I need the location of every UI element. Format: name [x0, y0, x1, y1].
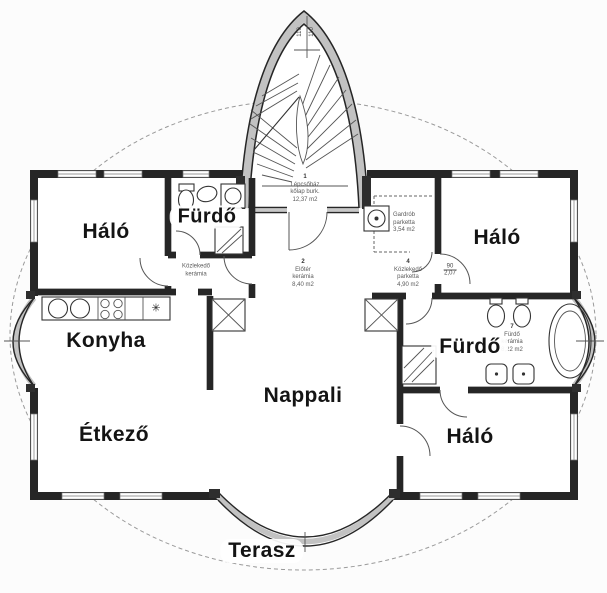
- room-label-terrace: Terasz: [220, 539, 303, 563]
- room-label-bathroom-right: Fürdő: [431, 335, 508, 359]
- boiler-icon: [364, 206, 389, 231]
- door-dimension: 90 2,07: [444, 264, 457, 277]
- room-label-dining-room: Étkező: [71, 423, 157, 447]
- room-label-bathroom-top-left: Fürdő: [170, 206, 245, 229]
- arch-dimension-right: 110: [309, 27, 315, 37]
- room-label-kitchen: Konyha: [58, 329, 153, 353]
- annotation-wardrobe: Gardrób parketta 3,54 m2: [393, 212, 415, 235]
- annotation-corridor-left: Közlekedő kerámia: [182, 264, 210, 279]
- shower-icon: [215, 227, 243, 254]
- annotation-corridor-right: 4 Közlekedő parketta 4,90 m2: [394, 259, 422, 289]
- room-label-bedroom-bottom-right: Háló: [438, 425, 501, 449]
- floor-plan: Háló Fürdő Háló Konyha Fürdő Nappali Étk…: [0, 0, 607, 593]
- kitchen-star-icon: ✳: [151, 302, 160, 315]
- chimney-right-icon: [365, 299, 398, 331]
- washing-machine-icon: [221, 184, 245, 208]
- room-label-bedroom-top-right: Háló: [465, 226, 528, 250]
- annotation-entry-hall: 2 Előtér kerámia 8,40 m2: [292, 259, 314, 289]
- room-label-living-room: Nappali: [256, 384, 351, 408]
- arch-dimension-left: 110: [297, 27, 303, 37]
- annotation-staircase: 1 Lépcsőház kőlap burk. 12,37 m2: [290, 174, 319, 204]
- floor-plan-drawing: [0, 0, 607, 593]
- chimney-left-icon: [212, 299, 245, 331]
- room-label-bedroom-top-left: Háló: [74, 220, 137, 244]
